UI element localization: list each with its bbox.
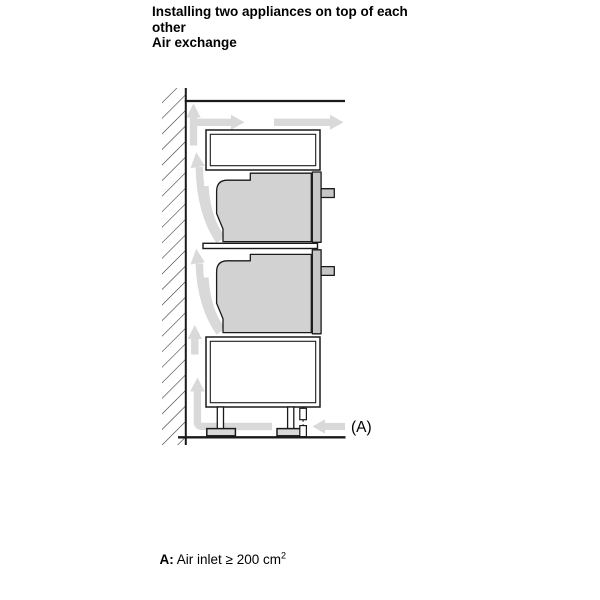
installation-diagram: (A)	[0, 0, 600, 600]
appliance-bodies	[217, 173, 312, 332]
plinth-marker-top	[300, 408, 307, 419]
note-superscript: 2	[281, 551, 286, 561]
upper-appliance-front	[312, 172, 321, 242]
air-inlet-arrow-a	[313, 419, 346, 433]
lower-appliance-front	[312, 250, 321, 334]
airflow-up-arrow-mid	[188, 325, 202, 355]
note-text: Air inlet ≥ 200 cm	[174, 552, 281, 567]
base-cabinet-outer	[206, 337, 320, 407]
airflow-right-arrow-1	[196, 115, 245, 130]
air-inlet-note: A: Air inlet ≥ 200 cm2	[152, 537, 286, 567]
appliance-fronts	[312, 172, 334, 334]
lower-appliance-body	[217, 254, 312, 332]
appliances	[217, 172, 335, 334]
airflow-swoosh-lower-head	[191, 249, 205, 265]
label-a: (A)	[351, 419, 372, 436]
lower-appliance-handle	[321, 267, 334, 276]
mid-shelf	[203, 243, 318, 248]
cabinet-leg-left	[217, 407, 223, 429]
cabinet-leg-right	[288, 407, 294, 429]
top-vent-compartment-outer	[206, 130, 320, 170]
airflow-right-arrow-2	[274, 115, 344, 130]
wall-hatch	[162, 88, 186, 445]
leg-foot-left	[207, 429, 236, 436]
plinth-marker-bottom	[300, 426, 307, 437]
note-term: A:	[160, 552, 174, 567]
base-legs	[207, 407, 307, 437]
upper-appliance-handle	[321, 189, 334, 198]
airflow-swoosh-upper-head	[191, 152, 205, 168]
upper-appliance-body	[217, 173, 312, 241]
airflow-inlet-up-head	[190, 378, 205, 392]
